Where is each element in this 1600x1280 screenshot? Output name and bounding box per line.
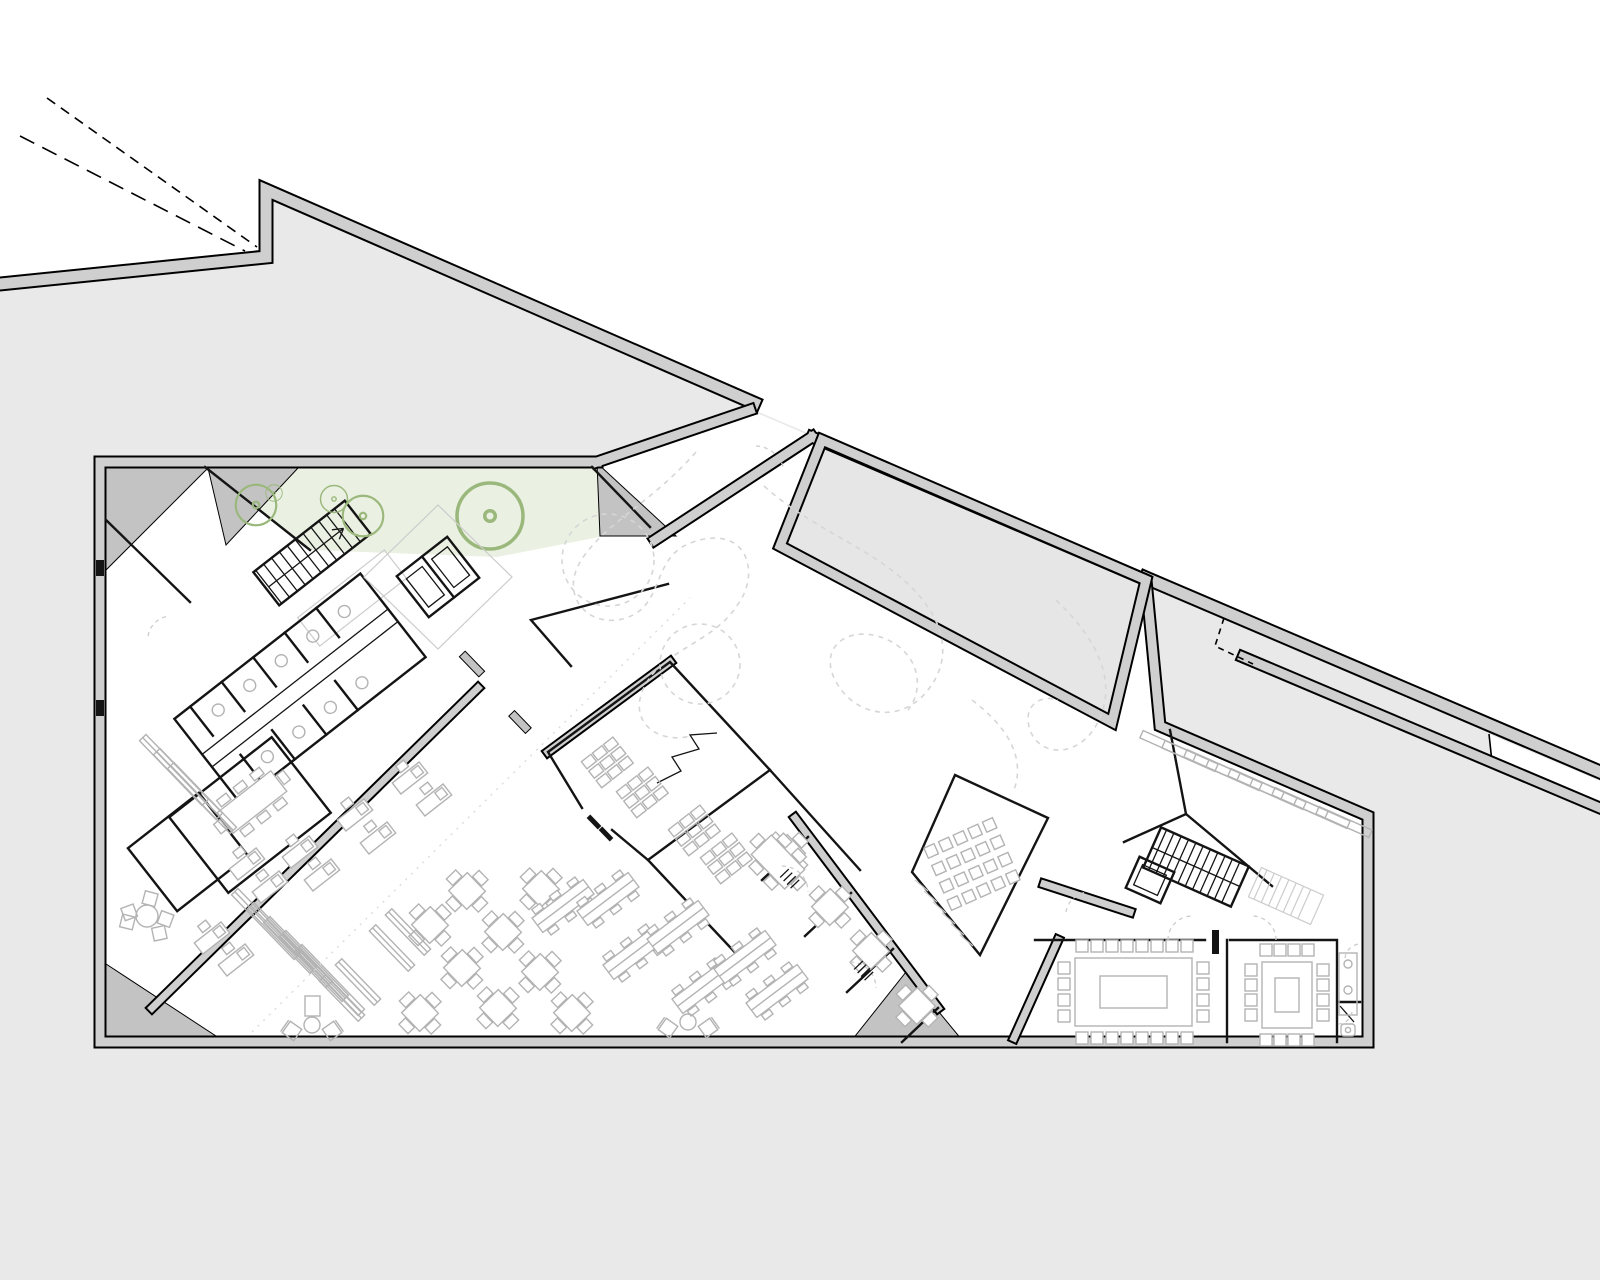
meeting-chair: [1181, 940, 1193, 952]
meeting-chair: [1317, 964, 1329, 976]
meeting-chair: [1245, 1009, 1257, 1021]
meeting-chair: [1121, 1032, 1133, 1044]
meeting-chair: [1260, 944, 1272, 956]
meeting-chair: [1166, 940, 1178, 952]
meeting-chair: [1106, 1032, 1118, 1044]
meeting-chair: [1245, 979, 1257, 991]
meeting-chair: [1197, 962, 1209, 974]
meeting-chair: [1181, 1032, 1193, 1044]
meeting-chair: [1091, 1032, 1103, 1044]
meeting-chair: [1076, 1032, 1088, 1044]
meeting-chair: [1058, 962, 1070, 974]
meeting-chair: [1245, 964, 1257, 976]
meeting-chair: [1274, 1034, 1286, 1046]
meeting-chair: [1197, 978, 1209, 990]
meeting-chair: [1317, 1009, 1329, 1021]
meeting-chair: [1136, 1032, 1148, 1044]
meeting-chair: [1197, 994, 1209, 1006]
meeting-chair: [1166, 1032, 1178, 1044]
meeting-chair: [1151, 940, 1163, 952]
meeting-chair: [1317, 994, 1329, 1006]
meeting-chair: [1091, 940, 1103, 952]
meeting-chair: [1288, 1034, 1300, 1046]
meeting-chair: [1058, 978, 1070, 990]
meeting-chair: [1260, 1034, 1272, 1046]
meeting-chair: [1121, 940, 1133, 952]
conference-ring-table: [1100, 976, 1167, 1008]
meeting-chair: [1106, 940, 1118, 952]
meeting-chair: [1058, 994, 1070, 1006]
meeting-chair: [1302, 1034, 1314, 1046]
conference-ring-table: [1275, 978, 1299, 1012]
meeting-chair: [1317, 979, 1329, 991]
meeting-chair: [1288, 944, 1300, 956]
meeting-chair: [1274, 944, 1286, 956]
meeting-chair: [1151, 1032, 1163, 1044]
floor-plan-page: [0, 0, 1600, 1280]
meeting-chair: [1076, 940, 1088, 952]
meeting-chair: [1245, 994, 1257, 1006]
meeting-chair: [1302, 944, 1314, 956]
meeting-chair: [1058, 1010, 1070, 1022]
floor-plan-drawing: [0, 0, 1600, 1280]
meeting-chair: [1197, 1010, 1209, 1022]
meeting-chair: [1136, 940, 1148, 952]
